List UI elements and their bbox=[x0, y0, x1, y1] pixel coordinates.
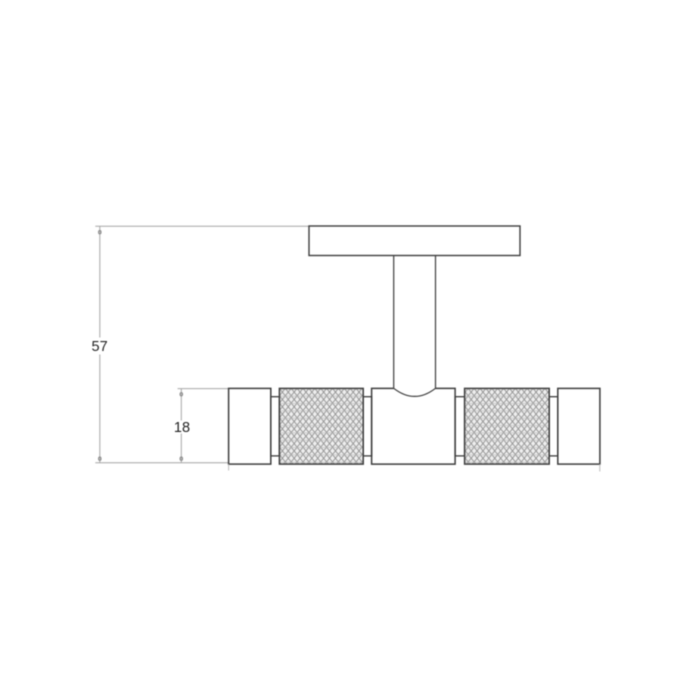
svg-text:57: 57 bbox=[92, 339, 108, 355]
svg-text:18: 18 bbox=[174, 420, 190, 436]
